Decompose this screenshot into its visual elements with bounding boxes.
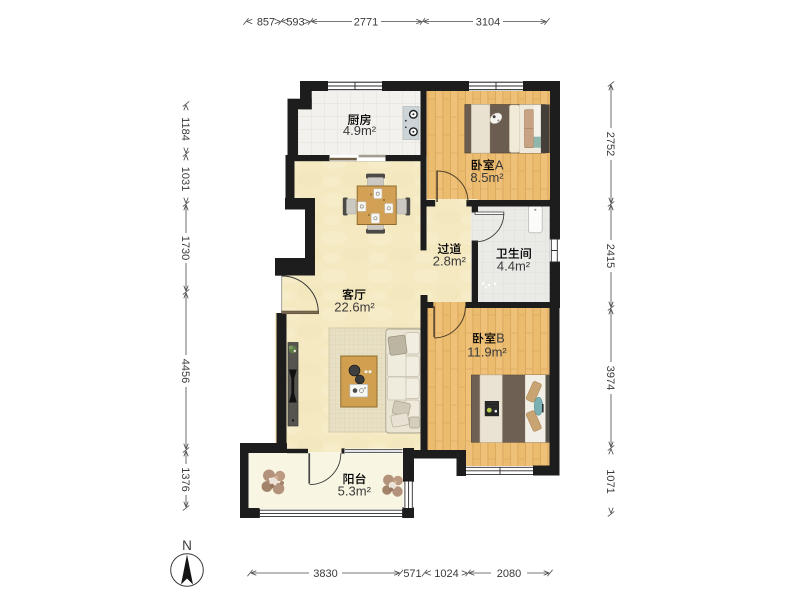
svg-text:3974: 3974 bbox=[604, 366, 616, 390]
svg-text:1376: 1376 bbox=[179, 467, 191, 491]
svg-text:2752: 2752 bbox=[604, 132, 616, 156]
svg-text:4456: 4456 bbox=[179, 359, 191, 383]
svg-text:8.5m²: 8.5m² bbox=[470, 170, 504, 185]
svg-text:N: N bbox=[182, 538, 192, 553]
svg-text:11.9m²: 11.9m² bbox=[467, 344, 507, 359]
svg-text:22.6m²: 22.6m² bbox=[334, 299, 375, 314]
svg-text:5.3m²: 5.3m² bbox=[338, 483, 372, 498]
svg-text:3830: 3830 bbox=[313, 568, 337, 580]
svg-text:1031: 1031 bbox=[179, 167, 191, 191]
svg-text:857: 857 bbox=[257, 17, 275, 29]
svg-text:1071: 1071 bbox=[604, 469, 616, 493]
svg-text:2.8m²: 2.8m² bbox=[433, 253, 467, 268]
svg-text:2771: 2771 bbox=[354, 17, 378, 29]
svg-text:1184: 1184 bbox=[179, 117, 191, 141]
svg-text:2080: 2080 bbox=[497, 568, 521, 580]
svg-text:571: 571 bbox=[403, 568, 421, 580]
svg-text:3104: 3104 bbox=[476, 17, 500, 29]
svg-text:1730: 1730 bbox=[179, 236, 191, 260]
svg-text:1024: 1024 bbox=[434, 568, 458, 580]
svg-text:4.4m²: 4.4m² bbox=[497, 258, 531, 273]
svg-text:2415: 2415 bbox=[604, 244, 616, 268]
svg-text:593: 593 bbox=[286, 17, 304, 29]
svg-text:4.9m²: 4.9m² bbox=[343, 123, 377, 138]
